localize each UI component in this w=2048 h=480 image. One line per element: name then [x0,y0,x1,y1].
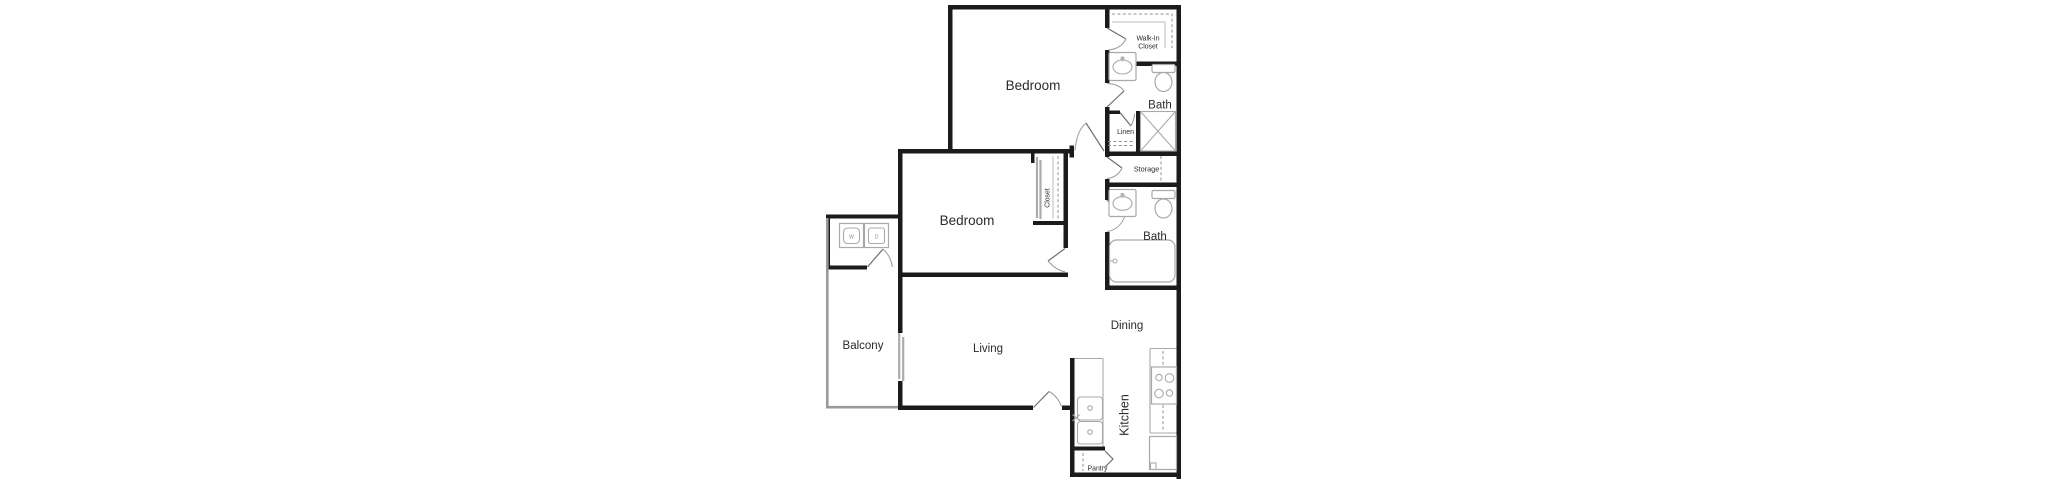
room-label-bath-2: Bath [1143,231,1167,243]
laundry-door-arc [868,249,893,267]
dryer-icon: D [865,224,889,248]
stove-icon [1152,367,1177,404]
room-label-bath-1: Bath [1148,100,1172,112]
toilet-icon [1152,191,1175,219]
bathroom-sink-icon [1109,190,1136,217]
laundry-appliances: W D [840,224,889,248]
room-label-storage: Storage [1134,165,1160,174]
kitchen-double-sink-icon [1073,397,1103,444]
floor-plan-drawing: W D [0,0,2048,480]
room-label-bedroom-1: Bedroom [1006,78,1061,93]
room-label-walk-in-closet-line1: Walk-In [1136,36,1159,43]
refrigerator-icon [1150,437,1177,470]
room-label-kitchen: Kitchen [1118,394,1132,436]
linen-door [1120,113,1135,127]
room-label-dining: Dining [1111,320,1144,332]
walk-in-closet-door-arc [1107,28,1126,50]
washer-icon: W [840,224,864,248]
room-label-bedroom-2: Bedroom [940,213,995,228]
room-label-linen: Linen [1117,129,1134,136]
doors [868,28,1135,467]
dryer-label: D [875,235,879,241]
bedroom2-door-arc [1048,249,1065,272]
bathtub-icon [1110,240,1176,282]
bath1-door-arc [1107,84,1124,108]
room-label-walk-in-closet-line2: Closet [1138,44,1158,51]
room-label-closet: Closet [1045,188,1052,208]
room-label-pantry: Pantry [1088,466,1108,473]
room-label-living: Living [973,343,1003,355]
toilet-icon [1152,65,1175,92]
shower-icon [1141,112,1176,152]
sliding-glass-door [899,333,903,381]
entry-door-arc [1034,392,1062,408]
storage-door-arc [1107,157,1122,179]
room-label-balcony: Balcony [843,340,884,352]
washer-label: W [849,235,854,241]
bathroom-sink-icon [1109,53,1136,81]
bedroom1-door-arc [1075,123,1104,151]
floor-plan-page: W D [0,0,2048,480]
